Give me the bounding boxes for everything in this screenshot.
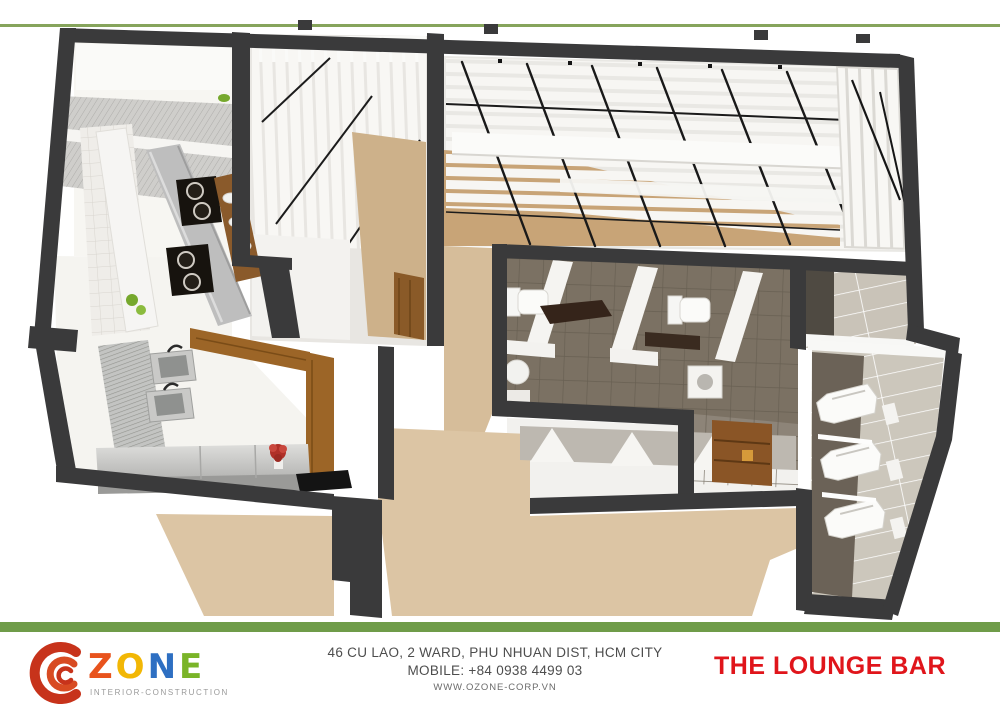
toilet-2 xyxy=(668,296,710,324)
logo-swirl-icon xyxy=(26,640,88,704)
logo-wordmark: ZONE xyxy=(88,650,205,684)
address-line-2: MOBILE: +84 0938 4499 03 xyxy=(295,662,695,680)
logo-letter: N xyxy=(148,647,179,687)
washer xyxy=(688,366,722,398)
logo-tagline: INTERIOR-CONSTRUCTION xyxy=(90,688,229,697)
logo-letter: Z xyxy=(88,647,116,687)
main-hall xyxy=(444,58,914,250)
company-website: WWW.OZONE-CORP.VN xyxy=(295,680,695,696)
logo-letter: E xyxy=(179,647,205,687)
address-line-1: 46 CU LAO, 2 WARD, PHU NHUAN DIST, HCM C… xyxy=(295,644,695,662)
stove-2 xyxy=(166,244,214,296)
logo-letter: O xyxy=(116,647,148,687)
project-title: THE LOUNGE BAR xyxy=(710,652,950,681)
floor-plan-rendering xyxy=(0,0,1000,640)
green-plate xyxy=(126,294,138,306)
company-address: 46 CU LAO, 2 WARD, PHU NHUAN DIST, HCM C… xyxy=(295,644,695,696)
wood-door xyxy=(394,272,424,340)
footer: ZONE INTERIOR-CONSTRUCTION 46 CU LAO, 2 … xyxy=(0,632,1000,714)
footer-divider-bar xyxy=(0,622,1000,632)
presentation-sheet: ZONE INTERIOR-CONSTRUCTION 46 CU LAO, 2 … xyxy=(0,0,1000,714)
green-dish xyxy=(218,94,230,102)
toilet-1 xyxy=(506,288,548,316)
sink-pedestal xyxy=(505,360,529,384)
company-logo: ZONE INTERIOR-CONSTRUCTION xyxy=(26,640,206,706)
wood-panel-wall xyxy=(712,420,772,486)
stove-1 xyxy=(176,176,222,226)
